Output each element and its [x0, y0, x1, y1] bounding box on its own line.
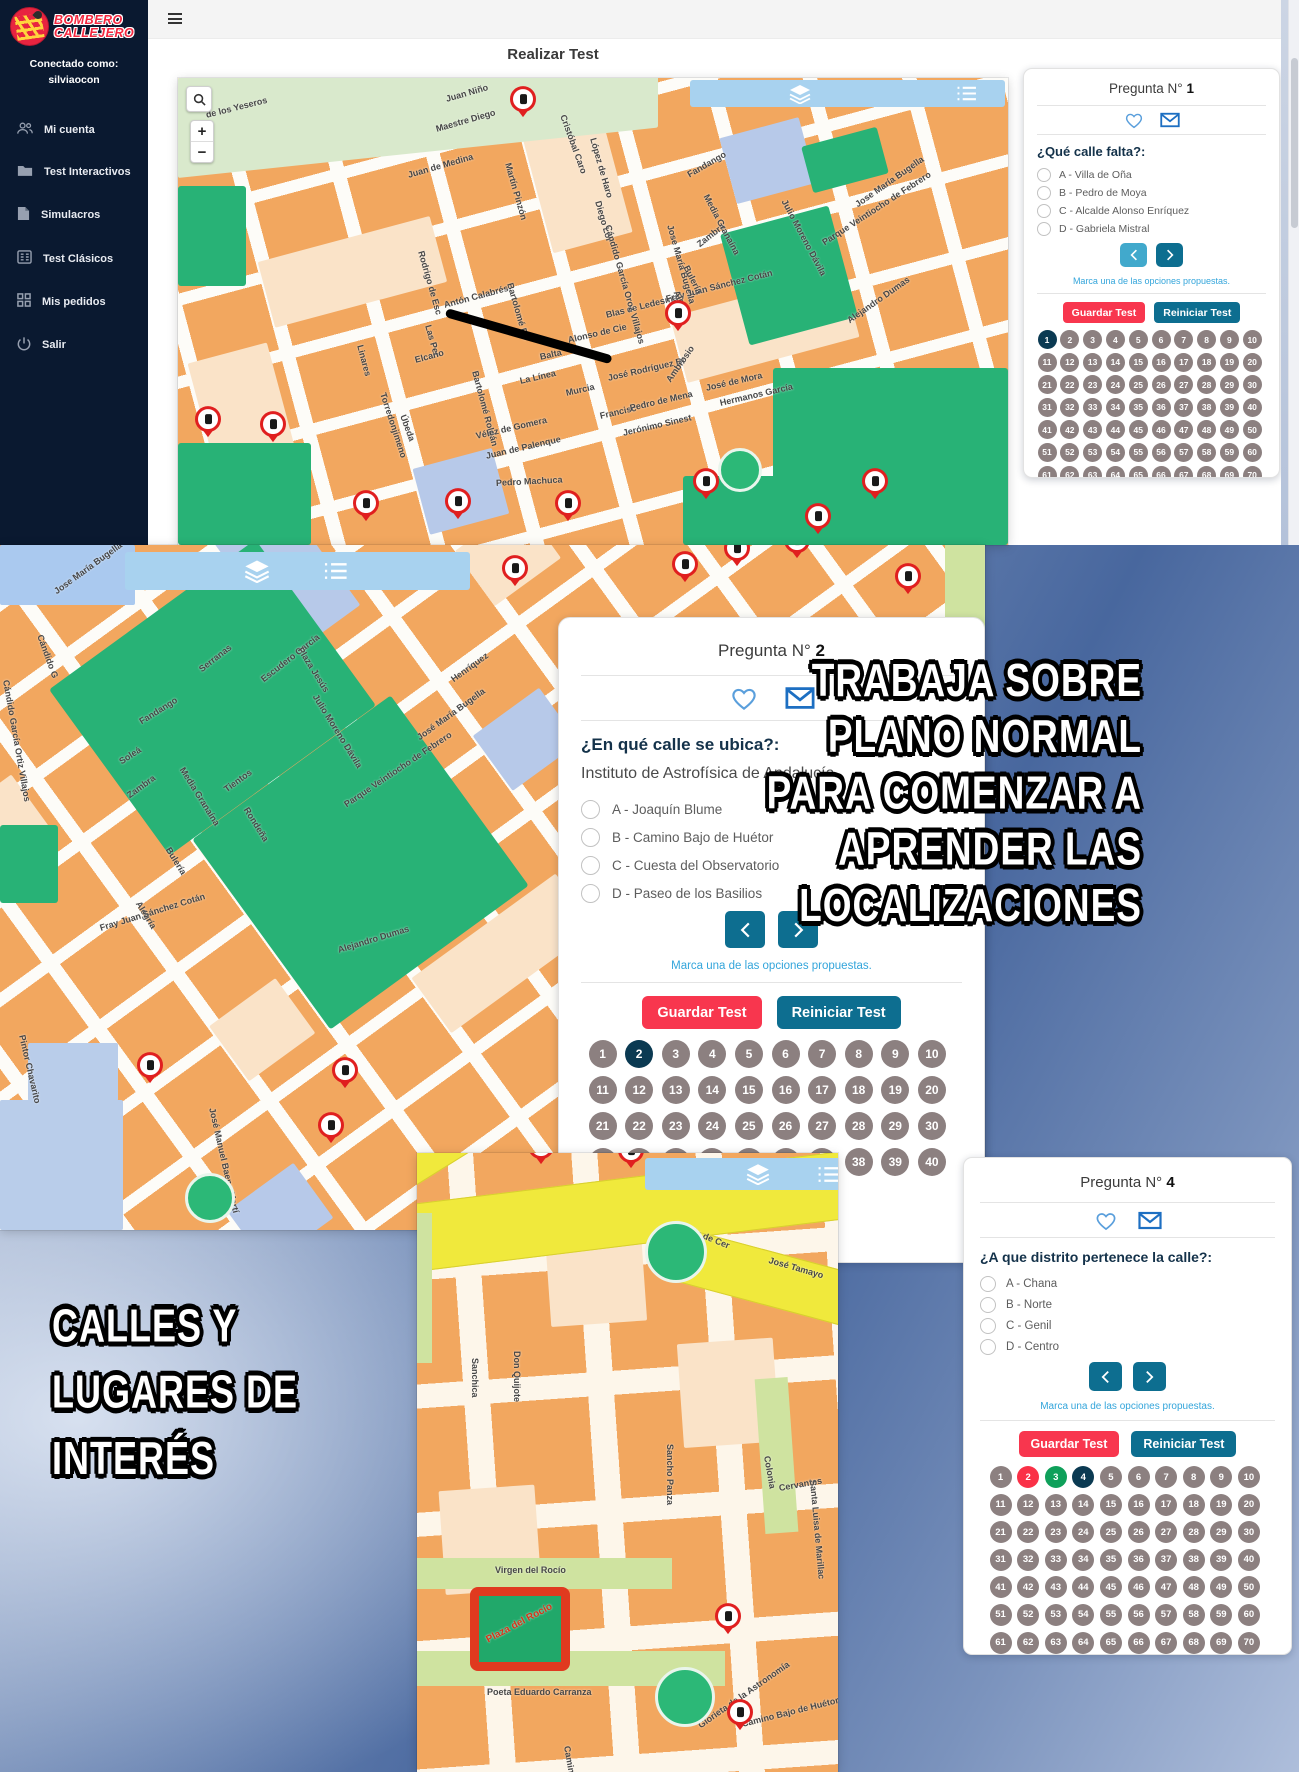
- roundabout-top: [645, 1221, 707, 1283]
- question-number-circle[interactable]: 70: [1238, 1632, 1260, 1654]
- question-number-circle[interactable]: 25: [1100, 1521, 1122, 1543]
- background-stripe: [1281, 0, 1288, 545]
- zoom-in-button[interactable]: +: [191, 121, 213, 141]
- question-number-circle[interactable]: 22: [1060, 375, 1079, 394]
- question-number-circle[interactable]: 29: [1210, 1521, 1232, 1543]
- question-number-circle[interactable]: 18: [1183, 1494, 1205, 1516]
- question-number-circle[interactable]: 22: [1017, 1521, 1039, 1543]
- question-number-circle[interactable]: 30: [918, 1112, 946, 1140]
- roundabout: [718, 448, 762, 492]
- reset-test-button[interactable]: Reiniciar Test: [1131, 1431, 1236, 1457]
- question-number-circle[interactable]: 44: [1072, 1576, 1094, 1598]
- question-number-circle[interactable]: 19: [1210, 1494, 1232, 1516]
- street-label: Virgen del Rocío: [495, 1565, 566, 1575]
- question-number-circle[interactable]: 12: [1060, 353, 1079, 372]
- question-number-circle[interactable]: 60: [1238, 1604, 1260, 1626]
- question-number-circle[interactable]: 58: [1183, 1604, 1205, 1626]
- question-number-circle[interactable]: 8: [1197, 330, 1216, 349]
- question-number-circle[interactable]: 27: [1174, 375, 1193, 394]
- question-number-circle[interactable]: 67: [1174, 466, 1193, 478]
- question-number-circle[interactable]: 64: [1072, 1632, 1094, 1654]
- question-number-circle[interactable]: 12: [625, 1076, 653, 1104]
- question-number-circle[interactable]: 56: [1152, 443, 1171, 462]
- sidebar-item-mi-cuenta[interactable]: Mi cuenta: [0, 108, 148, 151]
- option-d[interactable]: D - Gabriela Mistral: [1037, 220, 1266, 238]
- question-number-circle[interactable]: 40: [918, 1148, 946, 1176]
- map-calles-interes[interactable]: Ronda de CerJosé TamayoSanchicaDon Quijo…: [417, 1153, 838, 1772]
- question-number-circle[interactable]: 4: [698, 1040, 726, 1068]
- question-number-circle[interactable]: 5: [1129, 330, 1148, 349]
- question-number-circle[interactable]: 21: [990, 1521, 1012, 1543]
- question-number-circle[interactable]: 15: [1100, 1494, 1122, 1516]
- heart-icon[interactable]: [1124, 111, 1144, 129]
- map-toolbar: [645, 1158, 838, 1190]
- promo-collage: BOMBERO CALLEJERO Conectado como: silvia…: [0, 0, 1299, 1772]
- hydrant-pin: [665, 300, 691, 326]
- question-number-circle[interactable]: 39: [881, 1148, 909, 1176]
- logo-map-icon: [10, 7, 49, 46]
- question-number-circle[interactable]: 60: [1243, 443, 1262, 462]
- sidebar-item-label: Salir: [42, 339, 66, 351]
- question-number-circle[interactable]: 53: [1083, 443, 1102, 462]
- option-a[interactable]: A - Villa de Oña: [1037, 166, 1266, 184]
- question-number-circle[interactable]: 32: [1060, 398, 1079, 417]
- sidebar-item-label: Test Interactivos: [44, 166, 131, 178]
- question-number-circle[interactable]: 66: [1128, 1632, 1150, 1654]
- question-number-circle[interactable]: 24: [698, 1112, 726, 1140]
- question-number-circle[interactable]: 25: [735, 1112, 763, 1140]
- question-number-grid: 1234567891011121314151617181920212223242…: [1037, 330, 1266, 478]
- radio-c[interactable]: [581, 856, 600, 875]
- question-number-circle[interactable]: 18: [845, 1076, 873, 1104]
- question-number-circle[interactable]: 3: [1045, 1466, 1067, 1488]
- sidebar-item-test-interactivos[interactable]: Test Interactivos: [0, 151, 148, 193]
- hydrant-pin: [805, 503, 831, 529]
- question-number-circle[interactable]: 50: [1243, 420, 1262, 439]
- radio-d[interactable]: [1037, 222, 1051, 236]
- question-number-circle[interactable]: 55: [1100, 1604, 1122, 1626]
- hydrant-pin: [137, 1052, 163, 1078]
- question-number-circle[interactable]: 48: [1183, 1576, 1205, 1598]
- radio-d[interactable]: [980, 1339, 996, 1355]
- hydrant-pin: [502, 555, 528, 581]
- question-number-circle[interactable]: 48: [1197, 420, 1216, 439]
- question-number-circle[interactable]: 62: [1060, 466, 1079, 478]
- option-b[interactable]: B - Pedro de Moya: [1037, 184, 1266, 202]
- question-number-circle[interactable]: 22: [625, 1112, 653, 1140]
- question-text: ¿Qué calle falta?:: [1037, 144, 1266, 159]
- question-number-circle[interactable]: 17: [1155, 1494, 1177, 1516]
- hydrant-pin: [445, 488, 471, 514]
- question-number-circle[interactable]: 2: [625, 1040, 653, 1068]
- question-number-circle[interactable]: 36: [1128, 1549, 1150, 1571]
- radio-b[interactable]: [980, 1297, 996, 1313]
- question-number-circle[interactable]: 59: [1220, 443, 1239, 462]
- reset-test-button[interactable]: Reiniciar Test: [1154, 302, 1240, 323]
- question-number-circle[interactable]: 5: [1100, 1466, 1122, 1488]
- question-number-circle[interactable]: 6: [1128, 1466, 1150, 1488]
- caption-calles: CALLES Y LUGARES DE INTERÉS: [52, 1292, 298, 1491]
- prev-question-button[interactable]: [725, 911, 765, 948]
- list-icon[interactable]: [817, 1165, 838, 1184]
- save-test-button[interactable]: Guardar Test: [1019, 1431, 1120, 1457]
- hydrant-pin: [353, 490, 379, 516]
- question-number-circle[interactable]: 13: [662, 1076, 690, 1104]
- question-number-circle[interactable]: 63: [1083, 466, 1102, 478]
- question-panel-1: Pregunta N° 1 ¿Qué calle falta?: A - Vil…: [1023, 68, 1280, 478]
- question-number-circle[interactable]: 14: [1072, 1494, 1094, 1516]
- question-number-circle[interactable]: 6: [1152, 330, 1171, 349]
- question-number-circle[interactable]: 7: [808, 1040, 836, 1068]
- question-number-circle[interactable]: 3: [662, 1040, 690, 1068]
- hydrant-pin: [715, 1603, 741, 1629]
- question-number-circle[interactable]: 49: [1210, 1576, 1232, 1598]
- question-title: Pregunta N° 4: [980, 1174, 1275, 1191]
- question-number-circle[interactable]: 11: [1038, 353, 1057, 372]
- question-number-circle[interactable]: 1: [1038, 330, 1057, 349]
- question-number-circle[interactable]: 59: [1210, 1604, 1232, 1626]
- question-number-circle[interactable]: 15: [735, 1076, 763, 1104]
- heart-icon[interactable]: [1094, 1210, 1118, 1231]
- map-toolbar: [690, 80, 1005, 107]
- hydrant-pin: [727, 1699, 753, 1725]
- question-number-circle[interactable]: 28: [1197, 375, 1216, 394]
- question-number-circle[interactable]: 41: [1038, 420, 1057, 439]
- question-number-circle[interactable]: 9: [1210, 1466, 1232, 1488]
- question-number-circle[interactable]: 39: [1220, 398, 1239, 417]
- sidebar-item-label: Mis pedidos: [42, 296, 106, 308]
- question-number-circle[interactable]: 24: [1072, 1521, 1094, 1543]
- question-number-circle[interactable]: 31: [990, 1549, 1012, 1571]
- radio-b[interactable]: [581, 828, 600, 847]
- grid-icon: [17, 293, 31, 310]
- zoom-out-button[interactable]: −: [191, 141, 213, 162]
- question-number-circle[interactable]: 28: [845, 1112, 873, 1140]
- next-question-button[interactable]: [1133, 1362, 1166, 1391]
- question-number-circle[interactable]: 31: [1038, 398, 1057, 417]
- scrollbar-thumb[interactable]: [1291, 58, 1298, 228]
- question-number-circle[interactable]: 19: [1220, 353, 1239, 372]
- building-blue: [0, 1100, 123, 1230]
- sidebar-menu: Mi cuenta Test Interactivos Simulacros T…: [0, 108, 148, 367]
- question-number-circle[interactable]: 2: [1017, 1466, 1039, 1488]
- question-number-circle[interactable]: 7: [1174, 330, 1193, 349]
- hydrant-pin: [332, 1057, 358, 1083]
- app-screenshot-1: BOMBERO CALLEJERO Conectado como: silvia…: [0, 0, 1281, 545]
- save-test-button[interactable]: Guardar Test: [642, 996, 761, 1029]
- question-number-circle[interactable]: 62: [1017, 1632, 1039, 1654]
- envelope-icon[interactable]: [1138, 1210, 1162, 1231]
- logo-text-line1: BOMBERO: [54, 14, 134, 27]
- sidebar-item-simulacros[interactable]: Simulacros: [0, 193, 148, 237]
- option-b[interactable]: B - Norte: [980, 1294, 1275, 1315]
- question-number-circle[interactable]: 52: [1060, 443, 1079, 462]
- list-icon[interactable]: [956, 85, 977, 102]
- street-label: Poeta Eduardo Carranza: [487, 1687, 592, 1697]
- save-test-button[interactable]: Guardar Test: [1063, 302, 1146, 323]
- reset-test-button[interactable]: Reiniciar Test: [777, 996, 901, 1029]
- question-number-circle[interactable]: 20: [1243, 353, 1262, 372]
- radio-c[interactable]: [980, 1318, 996, 1334]
- question-number-circle[interactable]: 49: [1220, 420, 1239, 439]
- question-number-circle[interactable]: 40: [1238, 1549, 1260, 1571]
- option-d[interactable]: D - Centro: [980, 1336, 1275, 1357]
- question-number-circle[interactable]: 20: [918, 1076, 946, 1104]
- question-number-circle[interactable]: 9: [1220, 330, 1239, 349]
- question-number-circle[interactable]: 30: [1243, 375, 1262, 394]
- street-label: Sanchica: [470, 1358, 480, 1398]
- question-number-circle[interactable]: 17: [808, 1076, 836, 1104]
- question-number-circle[interactable]: 8: [1183, 1466, 1205, 1488]
- logo-text-line2: CALLEJERO: [54, 27, 134, 40]
- radio-a[interactable]: [980, 1276, 996, 1292]
- news-icon: [17, 250, 32, 267]
- radio-a[interactable]: [1037, 168, 1051, 182]
- radio-c[interactable]: [1037, 204, 1051, 218]
- layers-icon[interactable]: [243, 559, 271, 583]
- question-number-circle[interactable]: 54: [1106, 443, 1125, 462]
- question-number-circle[interactable]: 16: [1128, 1494, 1150, 1516]
- question-title: Pregunta N° 1: [1037, 81, 1266, 96]
- question-number-circle[interactable]: 1: [589, 1040, 617, 1068]
- sidebar-item-label: Mi cuenta: [44, 124, 95, 136]
- question-number-circle[interactable]: 38: [845, 1148, 873, 1176]
- question-number-circle[interactable]: 36: [1152, 398, 1171, 417]
- question-number-circle[interactable]: 30: [1238, 1521, 1260, 1543]
- question-number-circle[interactable]: 28: [1183, 1521, 1205, 1543]
- radio-b[interactable]: [1037, 186, 1051, 200]
- question-number-circle[interactable]: 32: [1017, 1549, 1039, 1571]
- question-number-circle[interactable]: 6: [772, 1040, 800, 1068]
- question-number-circle[interactable]: 44: [1106, 420, 1125, 439]
- power-icon: [17, 336, 31, 354]
- question-number-circle[interactable]: 13: [1083, 353, 1102, 372]
- hydrant-pin: [510, 86, 536, 112]
- question-number-circle[interactable]: 61: [1038, 466, 1057, 478]
- envelope-icon[interactable]: [1160, 111, 1180, 129]
- hydrant-pin: [260, 411, 286, 437]
- question-number-circle[interactable]: 51: [1038, 443, 1057, 462]
- hydrant-pin: [672, 551, 698, 577]
- question-number-circle[interactable]: 33: [1045, 1549, 1067, 1571]
- question-number-circle[interactable]: 10: [1243, 330, 1262, 349]
- hydrant-pin: [555, 490, 581, 516]
- question-number-circle[interactable]: 37: [1174, 398, 1193, 417]
- connected-label: Conectado como:: [0, 56, 148, 72]
- question-number-circle[interactable]: 26: [1152, 375, 1171, 394]
- question-number-circle[interactable]: 50: [1238, 1576, 1260, 1598]
- question-number-circle[interactable]: 37: [1155, 1549, 1177, 1571]
- question-panel-4: Pregunta N° 4 ¿A que distrito pertenece …: [963, 1157, 1292, 1655]
- question-number-circle[interactable]: 4: [1106, 330, 1125, 349]
- option-a[interactable]: A - Chana: [980, 1273, 1275, 1294]
- sidebar-item-label: Test Clásicos: [43, 253, 113, 265]
- question-number-circle[interactable]: 52: [1017, 1604, 1039, 1626]
- question-number-circle[interactable]: 47: [1174, 420, 1193, 439]
- hamburger-menu-icon[interactable]: [168, 13, 182, 24]
- question-number-circle[interactable]: 45: [1129, 420, 1148, 439]
- users-icon: [17, 121, 33, 138]
- question-number-circle[interactable]: 35: [1100, 1549, 1122, 1571]
- scrollbar[interactable]: [1288, 0, 1299, 545]
- question-number-circle[interactable]: 29: [881, 1112, 909, 1140]
- question-number-circle[interactable]: 70: [1243, 466, 1262, 478]
- question-number-circle[interactable]: 42: [1017, 1576, 1039, 1598]
- file-icon: [17, 206, 30, 224]
- question-number-circle[interactable]: 67: [1155, 1632, 1177, 1654]
- question-number-circle[interactable]: 69: [1220, 466, 1239, 478]
- page-title: Realizar Test: [448, 46, 658, 63]
- question-number-circle[interactable]: 12: [1017, 1494, 1039, 1516]
- question-number-circle[interactable]: 8: [845, 1040, 873, 1068]
- hint-text: Marca una de las opciones propuestas.: [980, 1401, 1275, 1412]
- question-number-circle[interactable]: 65: [1100, 1632, 1122, 1654]
- question-number-circle[interactable]: 26: [772, 1112, 800, 1140]
- map-toolbar: [125, 552, 470, 590]
- hydrant-pin: [693, 468, 719, 494]
- layers-icon[interactable]: [745, 1163, 771, 1185]
- question-number-circle[interactable]: 39: [1210, 1549, 1232, 1571]
- question-number-circle[interactable]: 5: [735, 1040, 763, 1068]
- question-number-circle[interactable]: 46: [1152, 420, 1171, 439]
- question-number-circle[interactable]: 57: [1155, 1604, 1177, 1626]
- sidebar: BOMBERO CALLEJERO Conectado como: silvia…: [0, 0, 148, 545]
- question-number-circle[interactable]: 23: [662, 1112, 690, 1140]
- question-number-circle[interactable]: 9: [881, 1040, 909, 1068]
- street-label: Sancho Panza: [665, 1444, 675, 1505]
- question-number-circle[interactable]: 11: [990, 1494, 1012, 1516]
- question-number-circle[interactable]: 66: [1152, 466, 1171, 478]
- hydrant-pin: [895, 563, 921, 589]
- folder-icon: [17, 164, 33, 180]
- hydrant-pin: [195, 406, 221, 432]
- question-number-circle[interactable]: 68: [1197, 466, 1216, 478]
- question-number-circle[interactable]: 3: [1083, 330, 1102, 349]
- question-number-circle[interactable]: 65: [1129, 466, 1148, 478]
- question-number-circle[interactable]: 57: [1174, 443, 1193, 462]
- layers-icon[interactable]: [788, 84, 812, 104]
- prev-question-button[interactable]: [1089, 1362, 1122, 1391]
- question-number-circle[interactable]: 55: [1129, 443, 1148, 462]
- question-number-circle[interactable]: 1: [990, 1466, 1012, 1488]
- question-number-circle[interactable]: 64: [1106, 466, 1125, 478]
- question-number-circle[interactable]: 10: [1238, 1466, 1260, 1488]
- question-number-circle[interactable]: 33: [1083, 398, 1102, 417]
- next-question-button[interactable]: [1156, 243, 1183, 267]
- question-number-circle[interactable]: 34: [1072, 1549, 1094, 1571]
- question-number-circle[interactable]: 19: [881, 1076, 909, 1104]
- question-number-circle[interactable]: 4: [1072, 1466, 1094, 1488]
- question-number-circle[interactable]: 14: [1106, 353, 1125, 372]
- question-number-circle[interactable]: 21: [589, 1112, 617, 1140]
- question-number-circle[interactable]: 46: [1128, 1576, 1150, 1598]
- question-number-circle[interactable]: 45: [1100, 1576, 1122, 1598]
- question-number-circle[interactable]: 17: [1174, 353, 1193, 372]
- question-number-circle[interactable]: 34: [1106, 398, 1125, 417]
- street-label: Don Quijote: [512, 1351, 522, 1402]
- question-number-circle[interactable]: 16: [1152, 353, 1171, 372]
- question-number-circle[interactable]: 14: [698, 1076, 726, 1104]
- question-number-circle[interactable]: 38: [1183, 1549, 1205, 1571]
- caption-trabaja: TRABAJA SOBRE PLANO NORMAL PARA COMENZAR…: [767, 652, 1142, 933]
- heart-icon[interactable]: [729, 685, 759, 711]
- question-number-circle[interactable]: 54: [1072, 1604, 1094, 1626]
- radio-d[interactable]: [581, 884, 600, 903]
- question-number-circle[interactable]: 16: [772, 1076, 800, 1104]
- question-number-circle[interactable]: 41: [990, 1576, 1012, 1598]
- question-number-circle[interactable]: 25: [1129, 375, 1148, 394]
- question-number-circle[interactable]: 23: [1083, 375, 1102, 394]
- question-number-circle[interactable]: 27: [1155, 1521, 1177, 1543]
- question-number-circle[interactable]: 58: [1197, 443, 1216, 462]
- question-number-circle[interactable]: 68: [1183, 1632, 1205, 1654]
- question-number-circle[interactable]: 2: [1060, 330, 1079, 349]
- hint-text: Marca una de las opciones propuestas.: [581, 960, 962, 972]
- question-number-circle[interactable]: 27: [808, 1112, 836, 1140]
- question-number-circle[interactable]: 21: [1038, 375, 1057, 394]
- question-number-circle[interactable]: 10: [918, 1040, 946, 1068]
- question-number-circle[interactable]: 43: [1045, 1576, 1067, 1598]
- sidebar-item-salir[interactable]: Salir: [0, 323, 148, 367]
- question-number-circle[interactable]: 15: [1129, 353, 1148, 372]
- question-number-circle[interactable]: 51: [990, 1604, 1012, 1626]
- building-blue: [28, 1043, 118, 1101]
- magnifier-icon: [193, 93, 206, 106]
- question-number-circle[interactable]: 56: [1128, 1604, 1150, 1626]
- prev-question-button[interactable]: [1120, 243, 1147, 267]
- top-bar: [148, 0, 1281, 39]
- question-number-circle[interactable]: 42: [1060, 420, 1079, 439]
- question-number-circle[interactable]: 40: [1243, 398, 1262, 417]
- question-number-circle[interactable]: 11: [589, 1076, 617, 1104]
- question-number-circle[interactable]: 29: [1220, 375, 1239, 394]
- list-icon[interactable]: [323, 561, 348, 581]
- map-search-button[interactable]: [186, 86, 212, 112]
- question-number-circle[interactable]: 26: [1128, 1521, 1150, 1543]
- option-c[interactable]: C - Alcalde Alonso Enríquez: [1037, 202, 1266, 220]
- roundabout: [185, 1173, 235, 1223]
- question-number-circle[interactable]: 43: [1083, 420, 1102, 439]
- question-number-circle[interactable]: 38: [1197, 398, 1216, 417]
- question-number-circle[interactable]: 53: [1045, 1604, 1067, 1626]
- sidebar-item-test-clasicos[interactable]: Test Clásicos: [0, 237, 148, 280]
- question-number-circle[interactable]: 24: [1106, 375, 1125, 394]
- app-logo: BOMBERO CALLEJERO: [10, 7, 134, 46]
- hydrant-pin: [318, 1112, 344, 1138]
- question-number-circle[interactable]: 13: [1045, 1494, 1067, 1516]
- question-number-circle[interactable]: 47: [1155, 1576, 1177, 1598]
- question-number-circle[interactable]: 35: [1129, 398, 1148, 417]
- roundabout-glorieta: [655, 1667, 715, 1727]
- question-number-circle[interactable]: 69: [1210, 1632, 1232, 1654]
- question-number-grid: 1234567891011121314151617181920212223242…: [980, 1466, 1275, 1654]
- hydrant-pin: [862, 468, 888, 494]
- question-number-circle[interactable]: 18: [1197, 353, 1216, 372]
- sidebar-item-mis-pedidos[interactable]: Mis pedidos: [0, 280, 148, 323]
- question-number-circle[interactable]: 23: [1045, 1521, 1067, 1543]
- map-zoom-control[interactable]: + −: [190, 120, 214, 163]
- question-number-circle[interactable]: 7: [1155, 1466, 1177, 1488]
- question-number-circle[interactable]: 63: [1045, 1632, 1067, 1654]
- option-c[interactable]: C - Genil: [980, 1315, 1275, 1336]
- question-number-circle[interactable]: 61: [990, 1632, 1012, 1654]
- sidebar-item-label: Simulacros: [41, 209, 100, 221]
- question-number-circle[interactable]: 20: [1238, 1494, 1260, 1516]
- question-text: ¿A que distrito pertenece la calle?:: [980, 1249, 1275, 1265]
- radio-a[interactable]: [581, 800, 600, 819]
- map-realizar-test[interactable]: + − de los YeserosJuan NiñoMaestre Diego…: [178, 78, 1008, 545]
- hint-text: Marca una de las opciones propuestas.: [1037, 276, 1266, 286]
